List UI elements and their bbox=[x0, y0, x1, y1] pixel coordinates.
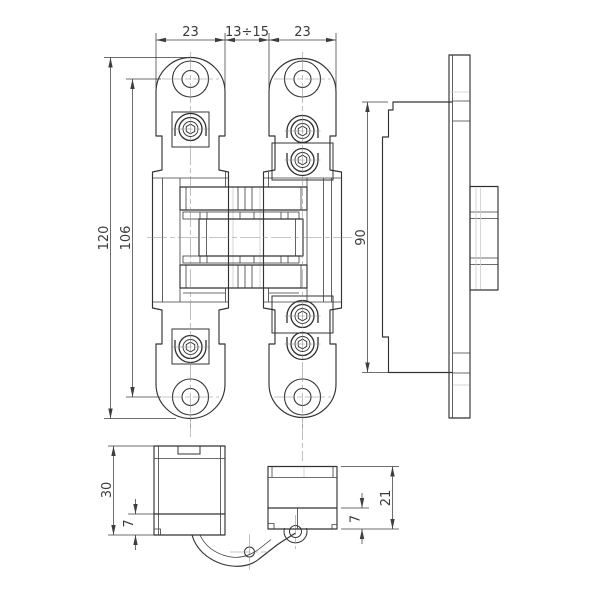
linkage-arms bbox=[192, 515, 307, 570]
dim-label-body-depth-left: 30 bbox=[100, 482, 115, 499]
side-view: 90 bbox=[354, 55, 498, 418]
dim-label-lip-right: 7 bbox=[349, 515, 364, 523]
hinge-body-side bbox=[383, 102, 453, 373]
dim-label-lip-left: 7 bbox=[122, 519, 137, 527]
jamb-box bbox=[268, 467, 337, 530]
dim-label-body-depth-right: 21 bbox=[379, 490, 394, 507]
dim-label-body-height: 90 bbox=[354, 229, 369, 246]
jamb-plate-edge bbox=[449, 55, 470, 418]
dim-label-plate-width-left: 23 bbox=[182, 25, 199, 40]
hinge-mechanism bbox=[153, 172, 342, 302]
dim-label-door-gap: 13÷15 bbox=[225, 25, 269, 40]
drawing-canvas: 23 13÷15 23 120 106 bbox=[0, 0, 600, 600]
dimensions-open-left: 30 7 bbox=[100, 446, 154, 550]
front-view: 23 13÷15 23 120 106 bbox=[97, 25, 352, 461]
dimensions-open-right: 7 21 bbox=[341, 467, 399, 545]
knuckle-block bbox=[470, 187, 498, 291]
dim-label-plate-width-right: 23 bbox=[294, 25, 311, 40]
hinge-technical-drawing: 23 13÷15 23 120 106 bbox=[0, 0, 600, 600]
dim-label-total-height: 120 bbox=[97, 226, 112, 251]
dim-label-hole-spacing: 106 bbox=[119, 226, 134, 251]
door-box bbox=[154, 446, 225, 535]
open-view-right: 7 21 bbox=[268, 467, 399, 545]
